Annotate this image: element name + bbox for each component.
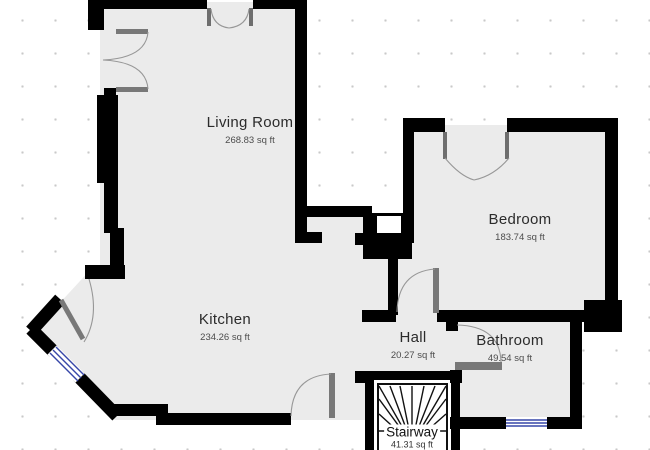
- room-name: Living Room: [207, 114, 294, 131]
- room-name: Bedroom: [489, 211, 552, 228]
- bathroom-window: [503, 417, 550, 429]
- room-label-living-room: Living Room 268.83 sq ft: [207, 114, 294, 146]
- room-label-bathroom: Bathroom 49.54 sq ft: [476, 332, 543, 364]
- room-label-stairway: Stairway 41.31 sq ft: [384, 425, 440, 450]
- room-label-bedroom: Bedroom 183.74 sq ft: [489, 211, 552, 243]
- room-area: 183.74 sq ft: [489, 232, 552, 243]
- shaft: [377, 216, 401, 233]
- room-name: Kitchen: [199, 311, 251, 328]
- room-area: 268.83 sq ft: [207, 135, 294, 146]
- floorplan-drawing: [0, 0, 650, 450]
- room-area: 234.26 sq ft: [199, 332, 251, 343]
- room-label-hall: Hall 20.27 sq ft: [391, 329, 435, 361]
- room-area: 49.54 sq ft: [476, 353, 543, 364]
- room-name: Hall: [391, 329, 435, 346]
- floorplan-canvas: Living Room 268.83 sq ft Kitchen 234.26 …: [0, 0, 650, 450]
- room-area: 41.31 sq ft: [384, 440, 440, 450]
- room-area: 20.27 sq ft: [391, 350, 435, 361]
- room-name: Stairway: [384, 425, 440, 440]
- room-name: Bathroom: [476, 332, 543, 349]
- room-label-kitchen: Kitchen 234.26 sq ft: [199, 311, 251, 343]
